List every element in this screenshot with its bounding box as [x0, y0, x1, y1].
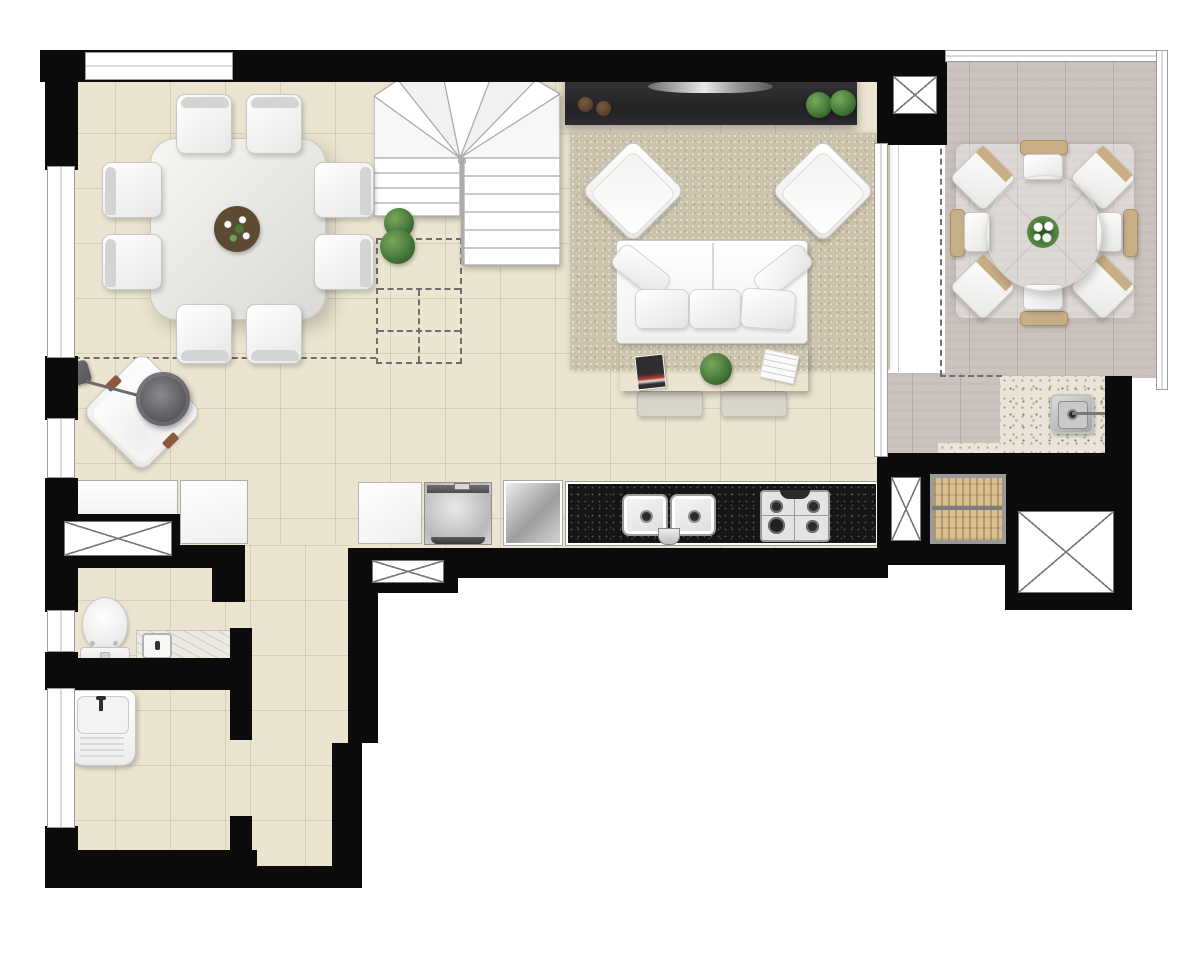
duct-shaft-x [893, 76, 937, 114]
wall-segment [430, 548, 888, 578]
wall-segment [45, 50, 78, 170]
outdoor-chair [950, 209, 965, 257]
black-granite-counter [566, 482, 878, 545]
console-plant [806, 92, 832, 118]
dining-chair [246, 94, 302, 154]
sofa [616, 240, 808, 344]
dining-chair [314, 234, 374, 290]
window [47, 418, 75, 478]
floor-plan [0, 0, 1200, 953]
window [47, 166, 75, 358]
projection-box-line3 [418, 290, 420, 362]
outdoor-chair [1123, 209, 1138, 257]
wall-segment [45, 356, 78, 420]
pouf [637, 391, 703, 417]
floor-lamp-shade [136, 372, 190, 426]
wall-segment [45, 658, 250, 690]
decor-bowl [596, 101, 611, 116]
window [47, 688, 75, 828]
barbecue-grill-overlay [930, 474, 1006, 544]
table-plant [700, 353, 732, 385]
console-plant [830, 90, 856, 116]
wall-segment [212, 545, 245, 602]
refrigerator [504, 481, 562, 545]
dining-chair [102, 162, 162, 218]
outdoor-chair [1020, 311, 1068, 326]
utility-counter [180, 480, 248, 544]
window [85, 52, 233, 80]
decor-bowl [578, 97, 593, 112]
wall-segment [332, 743, 362, 888]
dining-centerpiece [214, 206, 260, 252]
magazine [634, 354, 666, 391]
dining-chair [176, 94, 232, 154]
stair-shrub-2 [380, 229, 415, 264]
wall-segment [1105, 376, 1132, 456]
window [47, 610, 75, 652]
duct-shaft-x [891, 477, 921, 541]
outdoor-table-flowers [1027, 216, 1059, 248]
pouf [721, 391, 787, 417]
wall-segment [230, 816, 252, 866]
duct-shaft-x [1018, 511, 1114, 593]
vent-box-x [64, 521, 172, 556]
kitchen-cabinet [358, 482, 422, 544]
laundry-tub [70, 690, 136, 766]
vanity-sink [142, 633, 172, 659]
projection-line-terrace-h [940, 375, 1002, 377]
oven [424, 482, 492, 545]
terrace-parapet [1156, 50, 1168, 390]
terrace-edge-line [898, 143, 899, 375]
dining-chair [102, 234, 162, 290]
wall-segment [45, 850, 257, 888]
kitchen-faucet [658, 528, 680, 545]
dining-chair [246, 304, 302, 364]
dining-chair [176, 304, 232, 364]
terrace-parapet [945, 50, 1167, 62]
toilet [80, 597, 128, 663]
sliding-glass-door [874, 143, 888, 457]
gas-cooktop [760, 490, 830, 542]
dining-chair [314, 162, 374, 218]
outdoor-chair [1020, 140, 1068, 155]
vent-box-x [372, 560, 444, 583]
